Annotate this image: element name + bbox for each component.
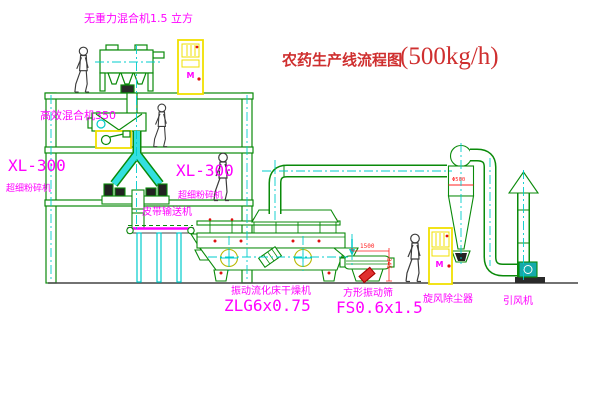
person-figure-1 (75, 47, 89, 92)
person-figure-3 (214, 153, 229, 200)
cabinet2-motor-label: M (430, 261, 449, 269)
diagram-title-capacity: (500kg/h) (400, 44, 499, 69)
person-figure-2 (154, 104, 168, 147)
mill-left (102, 184, 132, 204)
control-cabinet-2 (429, 228, 452, 284)
cabinet1-motor-label: M (180, 72, 201, 80)
exhaust-duct (252, 165, 447, 222)
mill-discharge-pipe (132, 190, 144, 228)
diagram-title: 农药生产线流程图 (282, 54, 402, 69)
zero-gravity-mixer (100, 45, 164, 114)
fluid-bed-dryer (197, 218, 358, 281)
person-figure-4 (406, 234, 421, 281)
draft-fan (515, 262, 545, 283)
control-cabinet-1 (178, 40, 203, 94)
square-sieve (340, 256, 394, 283)
cyclone-outlet-duct (470, 155, 519, 270)
process-flow-diagram: 无重力混合机1.5 立方 农药生产线流程图 (500kg/h) 高效混合机350… (0, 0, 600, 403)
